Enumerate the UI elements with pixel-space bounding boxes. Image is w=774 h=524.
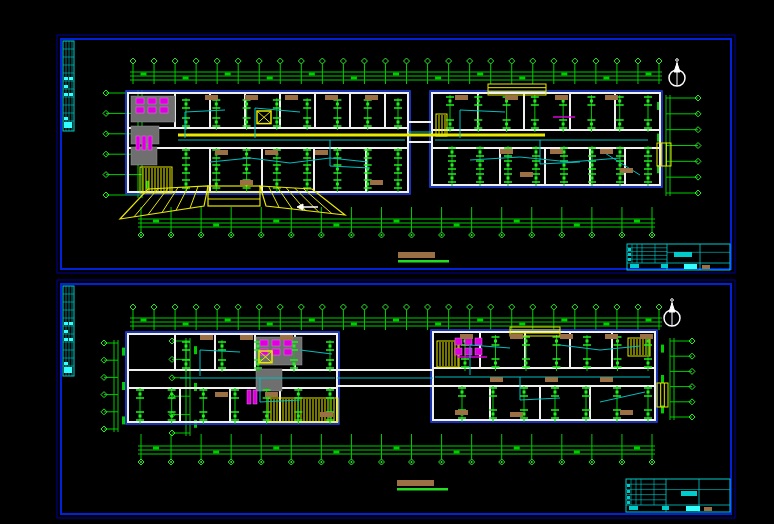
dimension-chain-horizontal — [138, 434, 655, 465]
light-fixture-grid — [182, 340, 334, 372]
entrance-canopy — [120, 186, 345, 219]
damper-symbol — [257, 111, 271, 124]
revision-strip-table — [63, 286, 74, 376]
cable-tray — [178, 117, 575, 135]
title-block — [627, 244, 730, 270]
cad-canvas[interactable] — [0, 0, 774, 524]
dimension-chain-horizontal — [130, 58, 662, 84]
entrance-door-bars — [657, 383, 668, 407]
drawing-caption — [397, 480, 448, 491]
title-block — [626, 479, 730, 512]
drawing-svg[interactable] — [0, 0, 774, 524]
light-fixture-grid — [182, 98, 402, 130]
dimension-chain-horizontal — [138, 207, 655, 238]
panel-cluster — [136, 136, 152, 150]
light-fixture-grid — [458, 386, 652, 422]
corridor-bridge — [337, 370, 433, 386]
north-arrow-icon — [669, 59, 685, 86]
direction-arrow — [297, 204, 318, 210]
stair-hatch — [436, 114, 447, 136]
sheet-frame — [57, 35, 735, 273]
sheet-lower-floor-plan[interactable] — [57, 280, 735, 518]
corridor-bridge — [408, 122, 432, 142]
floor-plan — [126, 327, 668, 424]
dimension-chain-horizontal — [130, 304, 662, 330]
floor-plan — [120, 84, 671, 219]
revision-strip-table — [63, 41, 74, 131]
drawing-caption — [398, 252, 449, 263]
panel-cluster — [247, 390, 257, 404]
stair-hatch — [268, 398, 338, 422]
dimension-chain-vertical — [101, 340, 125, 432]
light-fixture-grid — [446, 95, 652, 132]
dimension-chain-vertical — [657, 95, 701, 196]
sheet-upper-floor-plan[interactable] — [57, 35, 735, 273]
north-arrow-icon — [664, 299, 680, 326]
sheet-frame — [57, 280, 735, 518]
dimension-chain-vertical — [661, 338, 695, 420]
light-fixture-grid — [461, 335, 652, 371]
